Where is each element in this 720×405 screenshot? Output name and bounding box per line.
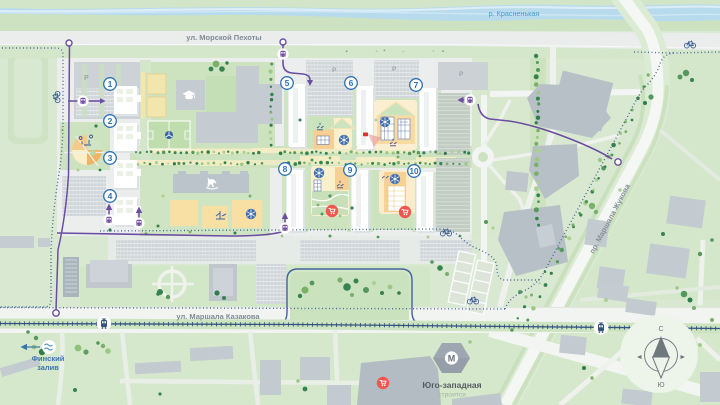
- svg-text:4: 4: [108, 191, 113, 201]
- svg-text:ул. Морской Пехоты: ул. Морской Пехоты: [186, 33, 261, 42]
- svg-text:3: 3: [108, 153, 113, 163]
- svg-text:Финский: Финский: [32, 354, 65, 363]
- svg-text:ул. Маршала Казакова: ул. Маршала Казакова: [176, 312, 260, 321]
- svg-text:Юго-западная: Юго-западная: [422, 380, 481, 390]
- svg-text:P: P: [392, 66, 397, 73]
- svg-text:M: M: [448, 354, 456, 364]
- svg-text:строится: строится: [438, 392, 466, 399]
- svg-text:5: 5: [285, 78, 290, 88]
- svg-text:1: 1: [108, 79, 113, 89]
- svg-text:6: 6: [349, 78, 354, 88]
- svg-text:P: P: [84, 75, 89, 82]
- svg-text:9: 9: [348, 165, 353, 175]
- svg-text:10: 10: [410, 167, 419, 176]
- svg-text:2: 2: [108, 116, 113, 126]
- svg-text:залив: залив: [37, 363, 59, 372]
- svg-text:8: 8: [283, 164, 288, 174]
- svg-text:С: С: [658, 326, 663, 333]
- svg-text:р. Красненькая: р. Красненькая: [489, 9, 540, 18]
- svg-text:P: P: [459, 71, 464, 78]
- svg-text:7: 7: [414, 80, 419, 90]
- svg-text:P: P: [332, 67, 337, 74]
- svg-text:Ю: Ю: [657, 382, 664, 389]
